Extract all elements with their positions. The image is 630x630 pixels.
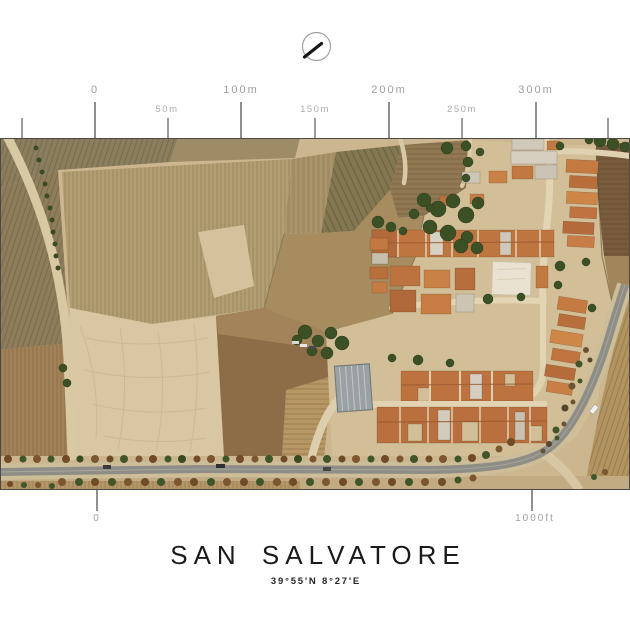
aerial-photo <box>0 138 630 490</box>
scale-tick-minor <box>21 118 23 138</box>
scale-tick-minor <box>607 118 609 138</box>
scale-label-300m: 300m <box>518 84 554 96</box>
scale-label-1000ft: 1000ft <box>515 513 555 524</box>
scale-tick-major <box>531 490 533 511</box>
scale-label-100m: 100m <box>223 84 259 96</box>
aerial-photo-graphic <box>0 138 630 490</box>
scale-tick-minor <box>461 118 463 138</box>
scale-label-150m: 150m <box>300 104 330 115</box>
scale-tick-major <box>388 102 390 138</box>
map-poster: 0 50m 100m 150m 200m 250m 300m <box>0 0 630 630</box>
scale-tick-minor <box>314 118 316 138</box>
scale-tick-minor <box>167 118 169 138</box>
poster-coordinates: 39°55'N 8°27'E <box>0 576 630 587</box>
scale-tick-major <box>96 490 98 511</box>
poster-title: SAN SALVATORE <box>0 540 630 571</box>
warehouse-building <box>334 364 372 412</box>
scale-label-200m: 200m <box>371 84 407 96</box>
scale-label-0m: 0 <box>91 84 99 96</box>
north-arrow-graphic <box>296 29 337 67</box>
scale-label-50m: 50m <box>156 104 179 115</box>
village-plaza <box>491 261 531 295</box>
scale-tick-major <box>535 102 537 138</box>
scale-tick-major <box>94 102 96 138</box>
north-arrow-icon <box>296 29 337 67</box>
scale-label-0ft: 0 <box>93 513 101 524</box>
scale-tick-major <box>240 102 242 138</box>
scale-label-250m: 250m <box>447 104 477 115</box>
